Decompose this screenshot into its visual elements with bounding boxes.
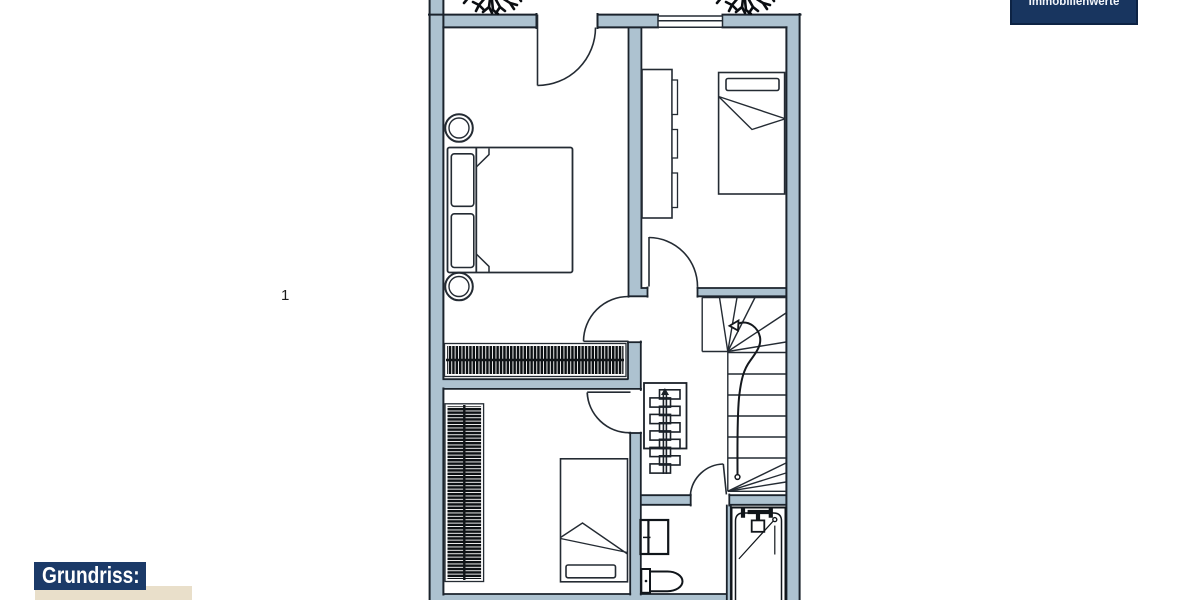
svg-text:1: 1 [281,287,289,304]
